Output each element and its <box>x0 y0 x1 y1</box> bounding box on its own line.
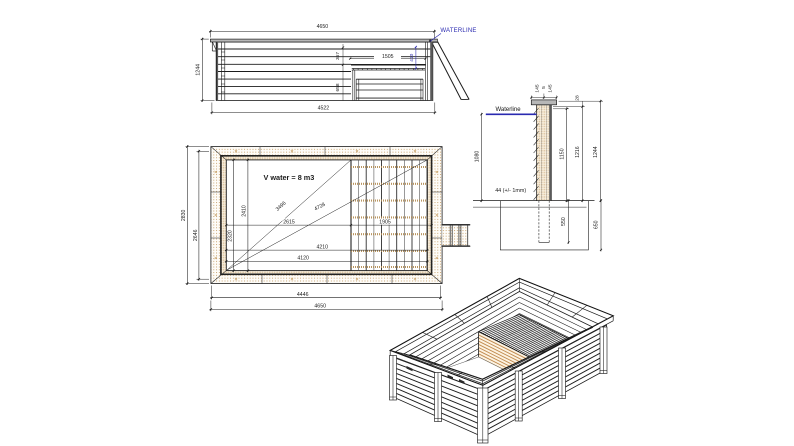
svg-text:4446: 4446 <box>297 292 309 298</box>
svg-text:WATERLINE: WATERLINE <box>440 28 476 34</box>
svg-text:550: 550 <box>561 217 567 226</box>
svg-text:1505: 1505 <box>382 54 394 60</box>
svg-text:2410: 2410 <box>242 205 248 217</box>
svg-text:2830: 2830 <box>181 210 187 222</box>
svg-text:2320: 2320 <box>227 230 233 242</box>
svg-text:1216: 1216 <box>575 146 581 158</box>
svg-text:5: 5 <box>541 86 547 89</box>
svg-text:410: 410 <box>409 53 415 61</box>
svg-text:650: 650 <box>594 220 600 229</box>
svg-text:1905: 1905 <box>379 220 391 226</box>
svg-text:V water = 8 m3: V water = 8 m3 <box>263 173 314 182</box>
svg-text:4650: 4650 <box>317 24 329 30</box>
svg-text:145: 145 <box>535 84 541 92</box>
svg-text:Waterline: Waterline <box>495 107 521 113</box>
svg-text:658: 658 <box>335 83 341 91</box>
svg-text:1150: 1150 <box>559 148 565 159</box>
svg-text:4522: 4522 <box>318 105 330 111</box>
svg-text:28: 28 <box>574 95 580 101</box>
svg-text:1080: 1080 <box>474 151 480 163</box>
svg-text:1244: 1244 <box>195 64 201 76</box>
svg-text:44 (+/- 1mm): 44 (+/- 1mm) <box>495 188 526 194</box>
svg-text:4210: 4210 <box>317 244 329 250</box>
svg-text:1244: 1244 <box>593 146 599 158</box>
svg-text:367: 367 <box>335 52 341 60</box>
svg-text:4650: 4650 <box>314 303 326 309</box>
svg-text:2615: 2615 <box>283 220 295 226</box>
svg-text:4120: 4120 <box>297 256 309 262</box>
svg-text:145: 145 <box>547 84 553 92</box>
svg-text:2646: 2646 <box>193 229 199 241</box>
